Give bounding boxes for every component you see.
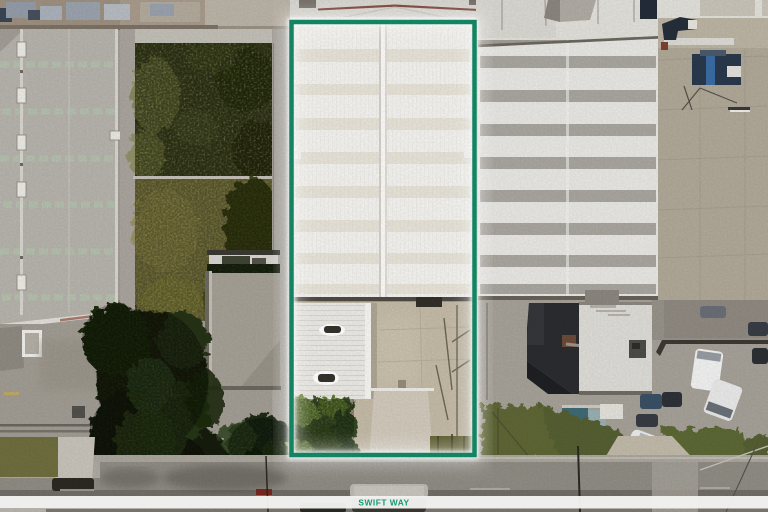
svg-text:SWIFT WAY: SWIFT WAY bbox=[358, 498, 409, 508]
